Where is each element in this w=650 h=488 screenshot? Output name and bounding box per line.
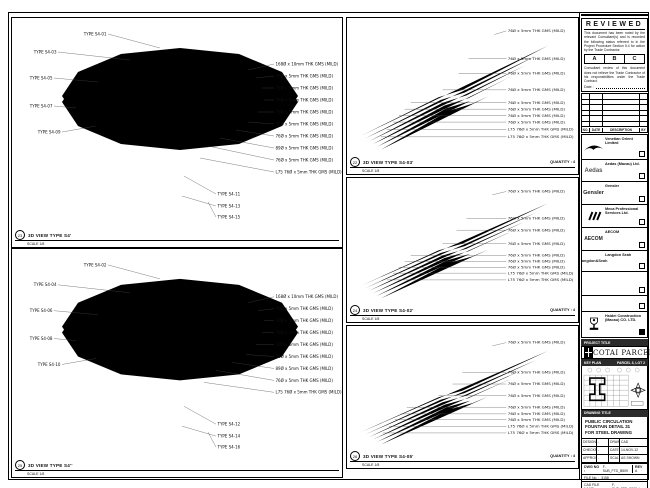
- consultant-name: Gensler: [605, 184, 619, 188]
- svg-text:76Ø x 5mm THK GMS (MILD): 76Ø x 5mm THK GMS (MILD): [276, 330, 334, 335]
- svg-text:76Ø x 5mm THK GMS (MILD): 76Ø x 5mm THK GMS (MILD): [276, 157, 334, 162]
- svg-text:TYPE S4-06: TYPE S4-06: [29, 308, 53, 313]
- svg-text:L75 76Ø x 5mm THK GMS (MILD): L75 76Ø x 5mm THK GMS (MILD): [276, 169, 343, 174]
- svg-text:TYPE S4-05: TYPE S4-05: [29, 75, 53, 80]
- received-stamp-bar: [581, 14, 648, 16]
- consultant-aecom: AECOM AECOM: [581, 228, 648, 251]
- approval-checkbox[interactable]: [639, 242, 645, 248]
- contractor-name: Hsidei Construction (Macau) CO. LTD.: [605, 314, 641, 322]
- title-rule: [15, 470, 339, 471]
- view-title: 3D VIEW TYPE S4': [28, 233, 71, 238]
- drawing-sheet-page: TYPE S4-01TYPE S4-03TYPE S4-05TYPE S4-07…: [0, 0, 650, 488]
- view-title: 3D VIEW TYPE S4-03': [363, 160, 414, 165]
- svg-text:76Ø x 5mm THK GMS (MILD): 76Ø x 5mm THK GMS (MILD): [276, 342, 334, 347]
- venetian-logo-icon: [582, 135, 605, 159]
- approved-label: APPROVED: [582, 455, 597, 463]
- panel-label: 26 3D VIEW TYPE S4-05' QUANTITY : 4 SCAL…: [350, 452, 575, 467]
- svg-text:89Ø x 5mm THK GMS (MILD): 89Ø x 5mm THK GMS (MILD): [276, 145, 334, 150]
- view-panel-3d-type-s4-alt: TYPE S4-02TYPE S4-04TYPE S4-06TYPE S4-08…: [11, 248, 343, 478]
- approval-checkbox[interactable]: [639, 196, 645, 202]
- title-rule: [350, 167, 575, 168]
- svg-text:76Ø x 5mm THK GMS (MILD): 76Ø x 5mm THK GMS (MILD): [508, 56, 566, 61]
- consultant-venetian: Venetian Orient Limited: [581, 135, 648, 160]
- view-scale: SCALE 1/8: [362, 317, 575, 321]
- svg-text:L75 76Ø x 5mm THK GMS (MILD): L75 76Ø x 5mm THK GMS (MILD): [508, 127, 574, 132]
- reviewed-heading: REVIEWED: [584, 21, 645, 30]
- banner-ornament-icon: [584, 347, 593, 358]
- view-title: 3D VIEW TYPE S4-05': [363, 454, 414, 459]
- svg-text:76Ø x 5mm THK GMS (MILD): 76Ø x 5mm THK GMS (MILD): [508, 216, 566, 221]
- svg-text:76Ø x 5mm THK GMS (MILD): 76Ø x 5mm THK GMS (MILD): [508, 393, 566, 398]
- meca-logo-icon: [582, 205, 605, 227]
- dwg-number-block: DWG NO : F-SUB_FTD_B509 REV A FILE No. :…: [581, 464, 648, 488]
- rev-value: A: [635, 469, 637, 473]
- svg-text:TYPE S4-10: TYPE S4-10: [37, 362, 61, 367]
- svg-text:76Ø x 5mm THK GMS (MILD): 76Ø x 5mm THK GMS (MILD): [276, 133, 334, 138]
- svg-text:76Ø x 5mm THK GMS (MILD): 76Ø x 5mm THK GMS (MILD): [508, 370, 566, 375]
- svg-text:76Ø x 5mm THK GMS (MILD): 76Ø x 5mm THK GMS (MILD): [508, 340, 566, 345]
- svg-text:L75 76Ø x 5mm THK GMS (MILD): L75 76Ø x 5mm THK GMS (MILD): [508, 277, 574, 282]
- svg-text:76Ø x 5mm THK GMS (MILD): 76Ø x 5mm THK GMS (MILD): [508, 253, 566, 258]
- svg-text:76Ø x 5mm THK GMS (MILD): 76Ø x 5mm THK GMS (MILD): [508, 28, 566, 33]
- revision-header-row: NO. DATE DESCRIPTION BY: [582, 127, 647, 132]
- scale-value: AS SHOWN: [620, 455, 647, 463]
- dwg-no-value: F-SUB_FTD_B509: [603, 465, 630, 473]
- panel-label: 22 3D VIEW TYPE S4-03' QUANTITY : 4 SCAL…: [350, 158, 575, 173]
- svg-text:76Ø x 5mm THK GMS (MILD): 76Ø x 5mm THK GMS (MILD): [508, 107, 566, 112]
- rev-col-description: DESCRIPTION: [603, 128, 640, 132]
- stamp-note-1: This document has been noted by the rele…: [584, 31, 645, 52]
- svg-text:TYPE S4-02: TYPE S4-02: [83, 262, 107, 267]
- svg-text:76Ø x 5mm THK GMS (MILD): 76Ø x 5mm THK GMS (MILD): [508, 241, 566, 246]
- detail-ref-bubble: 24: [350, 305, 360, 315]
- svg-text:TYPE S4-16: TYPE S4-16: [216, 444, 240, 449]
- svg-text:76Ø x 5mm THK GMS (MILD): 76Ø x 5mm THK GMS (MILD): [508, 189, 566, 194]
- approval-checkbox: [639, 329, 645, 335]
- detail-ref-bubble: 23: [15, 230, 25, 240]
- consultant-name: AECOM: [605, 230, 619, 234]
- drawing-title-label: DRAWING TITLE: [584, 411, 611, 415]
- status-option-b[interactable]: B: [605, 55, 625, 63]
- checked-value: -: [597, 447, 609, 455]
- key-plan-map: [581, 366, 648, 409]
- pipe-assembly-drawing: 76Ø x 5mm THK GMS (MILD)76Ø x 5mm THK GM…: [347, 18, 578, 158]
- contractor-box: Hsidei Construction (Macau) CO. LTD.: [581, 312, 648, 338]
- rev-col-no: NO.: [582, 128, 590, 132]
- svg-text:76Ø x 5mm THK GMS (MILD): 76Ø x 5mm THK GMS (MILD): [508, 87, 566, 92]
- consultant-name: Langdon Seah: [605, 253, 631, 257]
- svg-text:TYPE S4-14: TYPE S4-14: [216, 434, 240, 439]
- view-panel-3d-type-s4: TYPE S4-01TYPE S4-03TYPE S4-05TYPE S4-07…: [11, 17, 343, 248]
- svg-text:TYPE S4-13: TYPE S4-13: [217, 203, 241, 208]
- view-panel-type-s4-03: 76Ø x 5mm THK GMS (MILD)76Ø x 5mm THK GM…: [346, 17, 579, 175]
- svg-text:76Ø x 5mm THK GMS (MILD): 76Ø x 5mm THK GMS (MILD): [508, 71, 566, 76]
- date-fill-line[interactable]: [596, 85, 645, 89]
- svg-text:168Ø x 10mm THK GMS (MILD): 168Ø x 10mm THK GMS (MILD): [276, 61, 339, 66]
- approval-checkbox[interactable]: [639, 263, 645, 269]
- consultant-name: Meca Professional Services Ltd.: [605, 207, 638, 215]
- key-plan-label: KEY PLAN: [584, 361, 601, 365]
- svg-text:76Ø x 5mm THK GMS (MILD): 76Ø x 5mm THK GMS (MILD): [276, 121, 334, 126]
- svg-text:TYPE S4-11: TYPE S4-11: [217, 191, 241, 196]
- svg-text:76Ø x 5mm THK GMS (MILD): 76Ø x 5mm THK GMS (MILD): [508, 120, 566, 125]
- svg-text:76Ø x 5mm THK GMS (MILD): 76Ø x 5mm THK GMS (MILD): [276, 378, 334, 383]
- svg-text:76Ø x 5mm THK GMS (MILD): 76Ø x 5mm THK GMS (MILD): [276, 85, 334, 90]
- svg-text:TYPE S4-08: TYPE S4-08: [29, 336, 53, 341]
- svg-text:76Ø x 5mm THK GMS (MILD): 76Ø x 5mm THK GMS (MILD): [276, 354, 334, 359]
- view-scale: SCALE 1/8: [362, 169, 575, 173]
- consultant-name: Aedas (Macau) Ltd.: [605, 162, 640, 166]
- svg-text:L75 76Ø x 5mm THK GMS (MILD): L75 76Ø x 5mm THK GMS (MILD): [508, 271, 574, 276]
- consultant-blank-1: [581, 272, 648, 296]
- rev-col-by: BY: [640, 128, 647, 132]
- svg-text:TYPE S4-15: TYPE S4-15: [217, 214, 241, 219]
- svg-text:L75 76Ø x 5mm THK GMS (MILD): L75 76Ø x 5mm THK GMS (MILD): [508, 424, 574, 429]
- svg-text:TYPE S4-03: TYPE S4-03: [33, 49, 57, 54]
- svg-text:76Ø x 5mm THK GMS (MILD): 76Ø x 5mm THK GMS (MILD): [508, 113, 566, 118]
- svg-text:76Ø x 5mm THK GMS (MILD): 76Ø x 5mm THK GMS (MILD): [508, 100, 566, 105]
- pipe-assembly-drawing: 76Ø x 5mm THK GMS (MILD)76Ø x 5mm THK GM…: [347, 326, 578, 452]
- svg-text:TYPE S4-01: TYPE S4-01: [83, 31, 107, 36]
- project-title-bar: PROJECT TITLE: [581, 339, 648, 346]
- reviewed-stamp: REVIEWED This document has been noted by…: [581, 18, 648, 92]
- svg-text:76Ø x 5mm THK GMS (MILD): 76Ø x 5mm THK GMS (MILD): [508, 411, 566, 416]
- quantity-note: QUANTITY : 4: [550, 454, 575, 458]
- svg-text:76Ø x 5mm THK GMS (MILD): 76Ø x 5mm THK GMS (MILD): [508, 259, 566, 264]
- scale-label: SCALE: [609, 455, 620, 463]
- view-panel-type-s4-05: 76Ø x 5mm THK GMS (MILD)76Ø x 5mm THK GM…: [346, 325, 579, 469]
- drawing-title-bar: DRAWING TITLE: [581, 410, 648, 417]
- checked-label: CHECKED: [582, 447, 597, 455]
- view-title: 3D VIEW TYPE S4'': [28, 463, 73, 468]
- consultant-meca: Meca Professional Services Ltd.: [581, 205, 648, 228]
- consultant-aedas: Aedas Aedas (Macau) Ltd.: [581, 160, 648, 182]
- svg-text:168Ø x 10mm THK GMS (MILD): 168Ø x 10mm THK GMS (MILD): [276, 294, 339, 299]
- consultant-boxes: Venetian Orient Limited Aedas Aedas (Mac…: [581, 134, 648, 338]
- date-label: Date :: [584, 85, 594, 89]
- stamp-note-2: Consultant review of this document does …: [584, 66, 645, 83]
- consultant-name: Venetian Orient Limited: [605, 137, 633, 145]
- title-rule: [15, 240, 339, 241]
- svg-text:76Ø x 5mm THK GMS (MILD): 76Ø x 5mm THK GMS (MILD): [508, 417, 566, 422]
- canopy-structure-drawing: TYPE S4-02TYPE S4-04TYPE S4-06TYPE S4-08…: [12, 249, 342, 460]
- status-options: A B C: [584, 54, 645, 64]
- svg-text:L75 76Ø x 5mm THK GMS (MILD): L75 76Ø x 5mm THK GMS (MILD): [508, 134, 574, 139]
- quantity-note: QUANTITY : 4: [550, 160, 575, 164]
- view-panel-type-s4-02: 76Ø x 5mm THK GMS (MILD)76Ø x 5mm THK GM…: [346, 177, 579, 323]
- detail-ref-bubble: 22: [350, 157, 360, 167]
- view-title: 3D VIEW TYPE S4-02': [363, 308, 414, 313]
- canopy-structure-drawing: TYPE S4-01TYPE S4-03TYPE S4-05TYPE S4-07…: [12, 18, 342, 230]
- svg-text:76Ø x 5mm THK GMS (MILD): 76Ø x 5mm THK GMS (MILD): [276, 318, 334, 323]
- key-plan-parcel: PARCEL 3, LOT 2: [617, 361, 645, 365]
- title-block: REVIEWED This document has been noted by…: [579, 13, 649, 479]
- svg-text:TYPE S4-09: TYPE S4-09: [37, 129, 61, 134]
- title-rule: [350, 315, 575, 316]
- consultant-blank-2: [581, 296, 648, 312]
- quantity-note: QUANTITY : 4: [550, 308, 575, 312]
- svg-text:76Ø x 5mm THK GMS (MILD): 76Ø x 5mm THK GMS (MILD): [508, 382, 566, 387]
- svg-text:76Ø x 5mm THK GMS (MILD): 76Ø x 5mm THK GMS (MILD): [508, 405, 566, 410]
- svg-text:76Ø x 5mm THK GMS (MILD): 76Ø x 5mm THK GMS (MILD): [276, 109, 334, 114]
- aecom-logo-icon: AECOM: [582, 228, 605, 250]
- drawing-title-line3: FOR STEEL DRAWING: [585, 430, 644, 436]
- detail-ref-bubble: 25: [15, 460, 25, 470]
- project-title-label: PROJECT TITLE: [584, 341, 610, 345]
- file-no-label: FILE No. :: [584, 476, 599, 480]
- svg-text:TYPE S4-07: TYPE S4-07: [29, 103, 53, 108]
- gensler-logo-icon: Gensler: [582, 182, 605, 204]
- langdon-seah-logo-icon: Langdon&Seah: [582, 251, 605, 271]
- approval-checkbox[interactable]: [639, 303, 645, 309]
- detail-ref-bubble: 26: [350, 451, 360, 461]
- status-option-c[interactable]: C: [625, 55, 644, 63]
- date-label: DATE: [609, 447, 620, 455]
- svg-text:76Ø x 5mm THK GMS (MILD): 76Ø x 5mm THK GMS (MILD): [508, 265, 566, 270]
- revision-table: NO. DATE DESCRIPTION BY: [581, 93, 648, 133]
- svg-text:76Ø x 5mm THK GMS (MILD): 76Ø x 5mm THK GMS (MILD): [276, 73, 334, 78]
- date-value: 14-NOV-12: [620, 447, 647, 455]
- aedas-logo-icon: Aedas: [582, 160, 605, 181]
- drawn-value: CAD: [620, 439, 647, 447]
- rev-col-date: DATE: [590, 128, 603, 132]
- designed-label: DESIGNED: [582, 439, 597, 447]
- approval-checkbox[interactable]: [639, 287, 645, 293]
- drawing-title-text: PUBLIC CIRCULATION FOUNTAIN DETAIL 31 FO…: [581, 417, 648, 439]
- cad-file-value: F-SUB_FTD_B509.dwg: [612, 483, 645, 488]
- approved-value: -: [597, 455, 609, 463]
- drawn-label: DRAWN: [609, 439, 620, 447]
- consultant-gensler: Gensler Gensler: [581, 182, 648, 205]
- panel-label: 24 3D VIEW TYPE S4-02' QUANTITY : 4 SCAL…: [350, 306, 575, 321]
- consultant-langdon-seah: Langdon&Seah Langdon Seah: [581, 251, 648, 272]
- approval-checkbox[interactable]: [639, 173, 645, 179]
- approval-checkbox[interactable]: [639, 151, 645, 157]
- svg-text:89Ø x 5mm THK GMS (MILD): 89Ø x 5mm THK GMS (MILD): [276, 366, 334, 371]
- project-banner: COTAI PARCEL 3: [581, 346, 648, 359]
- view-scale: SCALE 1/8: [27, 242, 339, 246]
- title-rule: [350, 461, 575, 462]
- svg-text:TYPE S4-12: TYPE S4-12: [216, 422, 240, 427]
- project-name: COTAI PARCEL 3: [593, 349, 650, 357]
- svg-text:L75 76Ø x 5mm THK GMS (MILD): L75 76Ø x 5mm THK GMS (MILD): [276, 390, 342, 395]
- dwg-no-label: DWG NO :: [584, 465, 601, 473]
- cad-file-label: CAD FILE NAME :: [584, 483, 610, 488]
- file-no-value: 3158: [601, 476, 609, 480]
- status-option-a[interactable]: A: [585, 55, 605, 63]
- panel-label: 23 3D VIEW TYPE S4' SCALE 1/8: [15, 231, 339, 246]
- pipe-assembly-drawing: 76Ø x 5mm THK GMS (MILD)76Ø x 5mm THK GM…: [347, 178, 578, 306]
- sheet-border: TYPE S4-01TYPE S4-03TYPE S4-05TYPE S4-07…: [8, 12, 649, 480]
- credits-table: DESIGNED - DRAWN CAD CHECKED - DATE 14-N…: [581, 439, 648, 464]
- view-scale: SCALE 1/8: [362, 463, 575, 467]
- svg-text:76Ø x 5mm THK GMS (MILD): 76Ø x 5mm THK GMS (MILD): [276, 97, 334, 102]
- svg-text:76Ø x 5mm THK GMS (MILD): 76Ø x 5mm THK GMS (MILD): [276, 306, 334, 311]
- panel-label: 25 3D VIEW TYPE S4'' SCALE 1/8: [15, 461, 339, 476]
- contractor-trophy-logo-icon: [582, 312, 605, 337]
- view-scale: SCALE 1/8: [27, 472, 339, 476]
- key-plan-bar: KEY PLAN PARCEL 3, LOT 2: [581, 359, 648, 366]
- svg-text:TYPE S4-04: TYPE S4-04: [33, 282, 57, 287]
- svg-text:76Ø x 5mm THK GMS (MILD): 76Ø x 5mm THK GMS (MILD): [508, 228, 566, 233]
- svg-text:L75 76Ø x 5mm THK GMS (MILD): L75 76Ø x 5mm THK GMS (MILD): [508, 430, 574, 435]
- approval-checkbox[interactable]: [639, 219, 645, 225]
- designed-value: -: [597, 439, 609, 447]
